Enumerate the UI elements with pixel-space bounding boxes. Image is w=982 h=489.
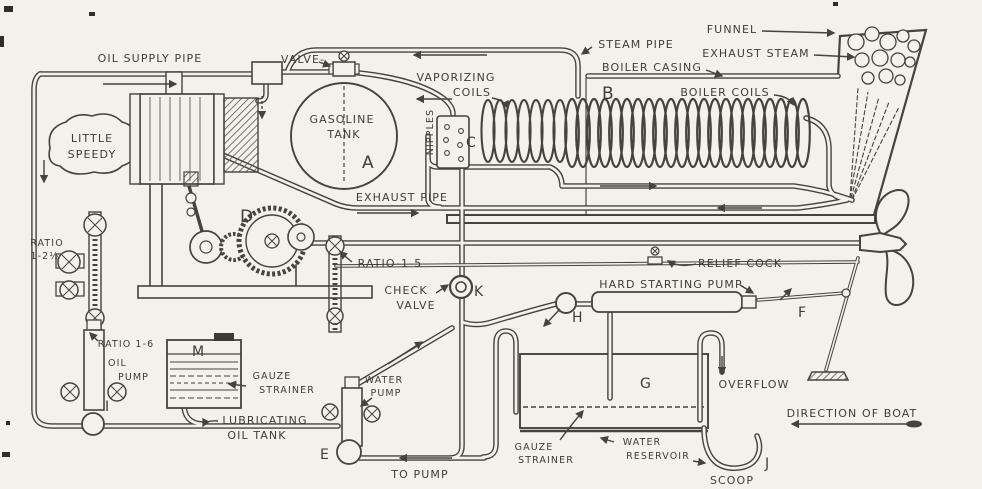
label-gauze-2: GAUZE	[515, 442, 554, 453]
tank-filler-cap	[214, 333, 234, 341]
letter-f-pump-rod: F	[798, 305, 806, 321]
letter-b-boiler: B	[602, 84, 614, 104]
water-pump-foot	[337, 440, 361, 464]
letter-e-water-pump: E	[320, 447, 329, 463]
tiller-foot	[808, 372, 848, 380]
engine-hatched-block	[224, 98, 258, 172]
shaft-pulley	[288, 224, 314, 250]
label-strainer-1: STRAINER	[259, 385, 315, 396]
label-lubricating: LUBRICATING	[222, 414, 307, 427]
label-water-pump: PUMP	[370, 388, 401, 399]
label-oil-pump: PUMP	[118, 372, 149, 383]
letter-a-gasoline-tank: A	[362, 153, 374, 173]
label-check: CHECK	[384, 284, 427, 297]
direction-line-end-blob	[906, 421, 922, 428]
label-speedy: SPEEDY	[68, 148, 117, 161]
label-reservoir: RESERVOIR	[626, 451, 690, 462]
label-oil-tank: OIL TANK	[227, 429, 286, 442]
label-ratio-1-6: RATIO 1-6	[98, 339, 155, 350]
crosshead	[184, 172, 198, 186]
pipe-union-fitting	[252, 62, 282, 84]
label-ratio-1-2-line1: RATIO	[30, 238, 64, 249]
label-exhaust-steam: EXHAUST STEAM	[702, 47, 810, 60]
label-little: LITTLE	[71, 132, 113, 145]
check-valve	[450, 276, 472, 298]
label-water: WATER	[365, 375, 404, 386]
letter-c-burner: C	[466, 135, 476, 151]
label-ratio-1-2-line2: 1-2½	[30, 251, 59, 262]
engine-cylinder	[140, 94, 214, 184]
letter-g-reservoir: G	[640, 376, 651, 392]
tiller-joint	[842, 289, 850, 297]
label-gasoline: GASOLINE	[309, 113, 374, 126]
label-oil-supply-pipe: OIL SUPPLY PIPE	[98, 52, 203, 65]
letter-j-scoop: J	[764, 456, 769, 472]
label-strainer-2: STRAINER	[518, 455, 574, 466]
boiler-casing-floor	[447, 215, 875, 223]
letter-m-oil-tank: M	[192, 344, 204, 360]
letter-d-engine: D	[240, 207, 253, 227]
label-direction-of-boat: DIRECTION OF BOAT	[787, 407, 918, 420]
label-water-2: WATER	[623, 437, 662, 448]
label-oil: OIL	[108, 358, 127, 369]
label-ratio-1-5: RATIO-1-5	[358, 257, 423, 270]
letter-k-check-valve: K	[474, 284, 484, 300]
mid-chain-drive	[326, 236, 344, 332]
label-funnel: FUNNEL	[707, 23, 758, 36]
label-boiler-coils: BOILER COILS	[680, 86, 769, 99]
label-gauze-1: GAUZE	[253, 371, 292, 382]
label-to-pump: TO PUMP	[390, 468, 448, 481]
letter-h-ball: H	[572, 310, 583, 326]
burner	[437, 116, 469, 168]
label-overflow: OVERFLOW	[719, 378, 790, 391]
letter-i-oil-pump: I	[105, 399, 109, 415]
label-scoop: SCOOP	[710, 474, 754, 487]
label-exhaust-pipe: EXHAUST PIPE	[356, 191, 448, 204]
engine-base	[138, 286, 372, 298]
label-check-valve: VALVE	[396, 299, 435, 312]
diagram-canvas: OIL SUPPLY PIPE LITTLE SPEEDY VALVE- GAS…	[0, 0, 982, 489]
label-nipples: NIPPLES	[425, 109, 436, 155]
label-relief-cock: RELIEF COCK	[698, 257, 782, 270]
label-hard-starting-pump: HARD STARTING PUMP	[599, 278, 742, 291]
steam-boat-engine-diagram: OIL SUPPLY PIPE LITTLE SPEEDY VALVE- GAS…	[0, 0, 982, 489]
oil-pump-foot	[82, 413, 104, 435]
label-boiler-casing: BOILER CASING	[602, 61, 702, 74]
label-vaporizing: VAPORIZING	[416, 71, 495, 84]
label-vaporizing-coils: COILS	[453, 86, 491, 99]
label-steam-pipe: STEAM PIPE	[598, 38, 674, 51]
label-valve: VALVE-	[281, 53, 325, 66]
label-tank: TANK	[326, 128, 360, 141]
